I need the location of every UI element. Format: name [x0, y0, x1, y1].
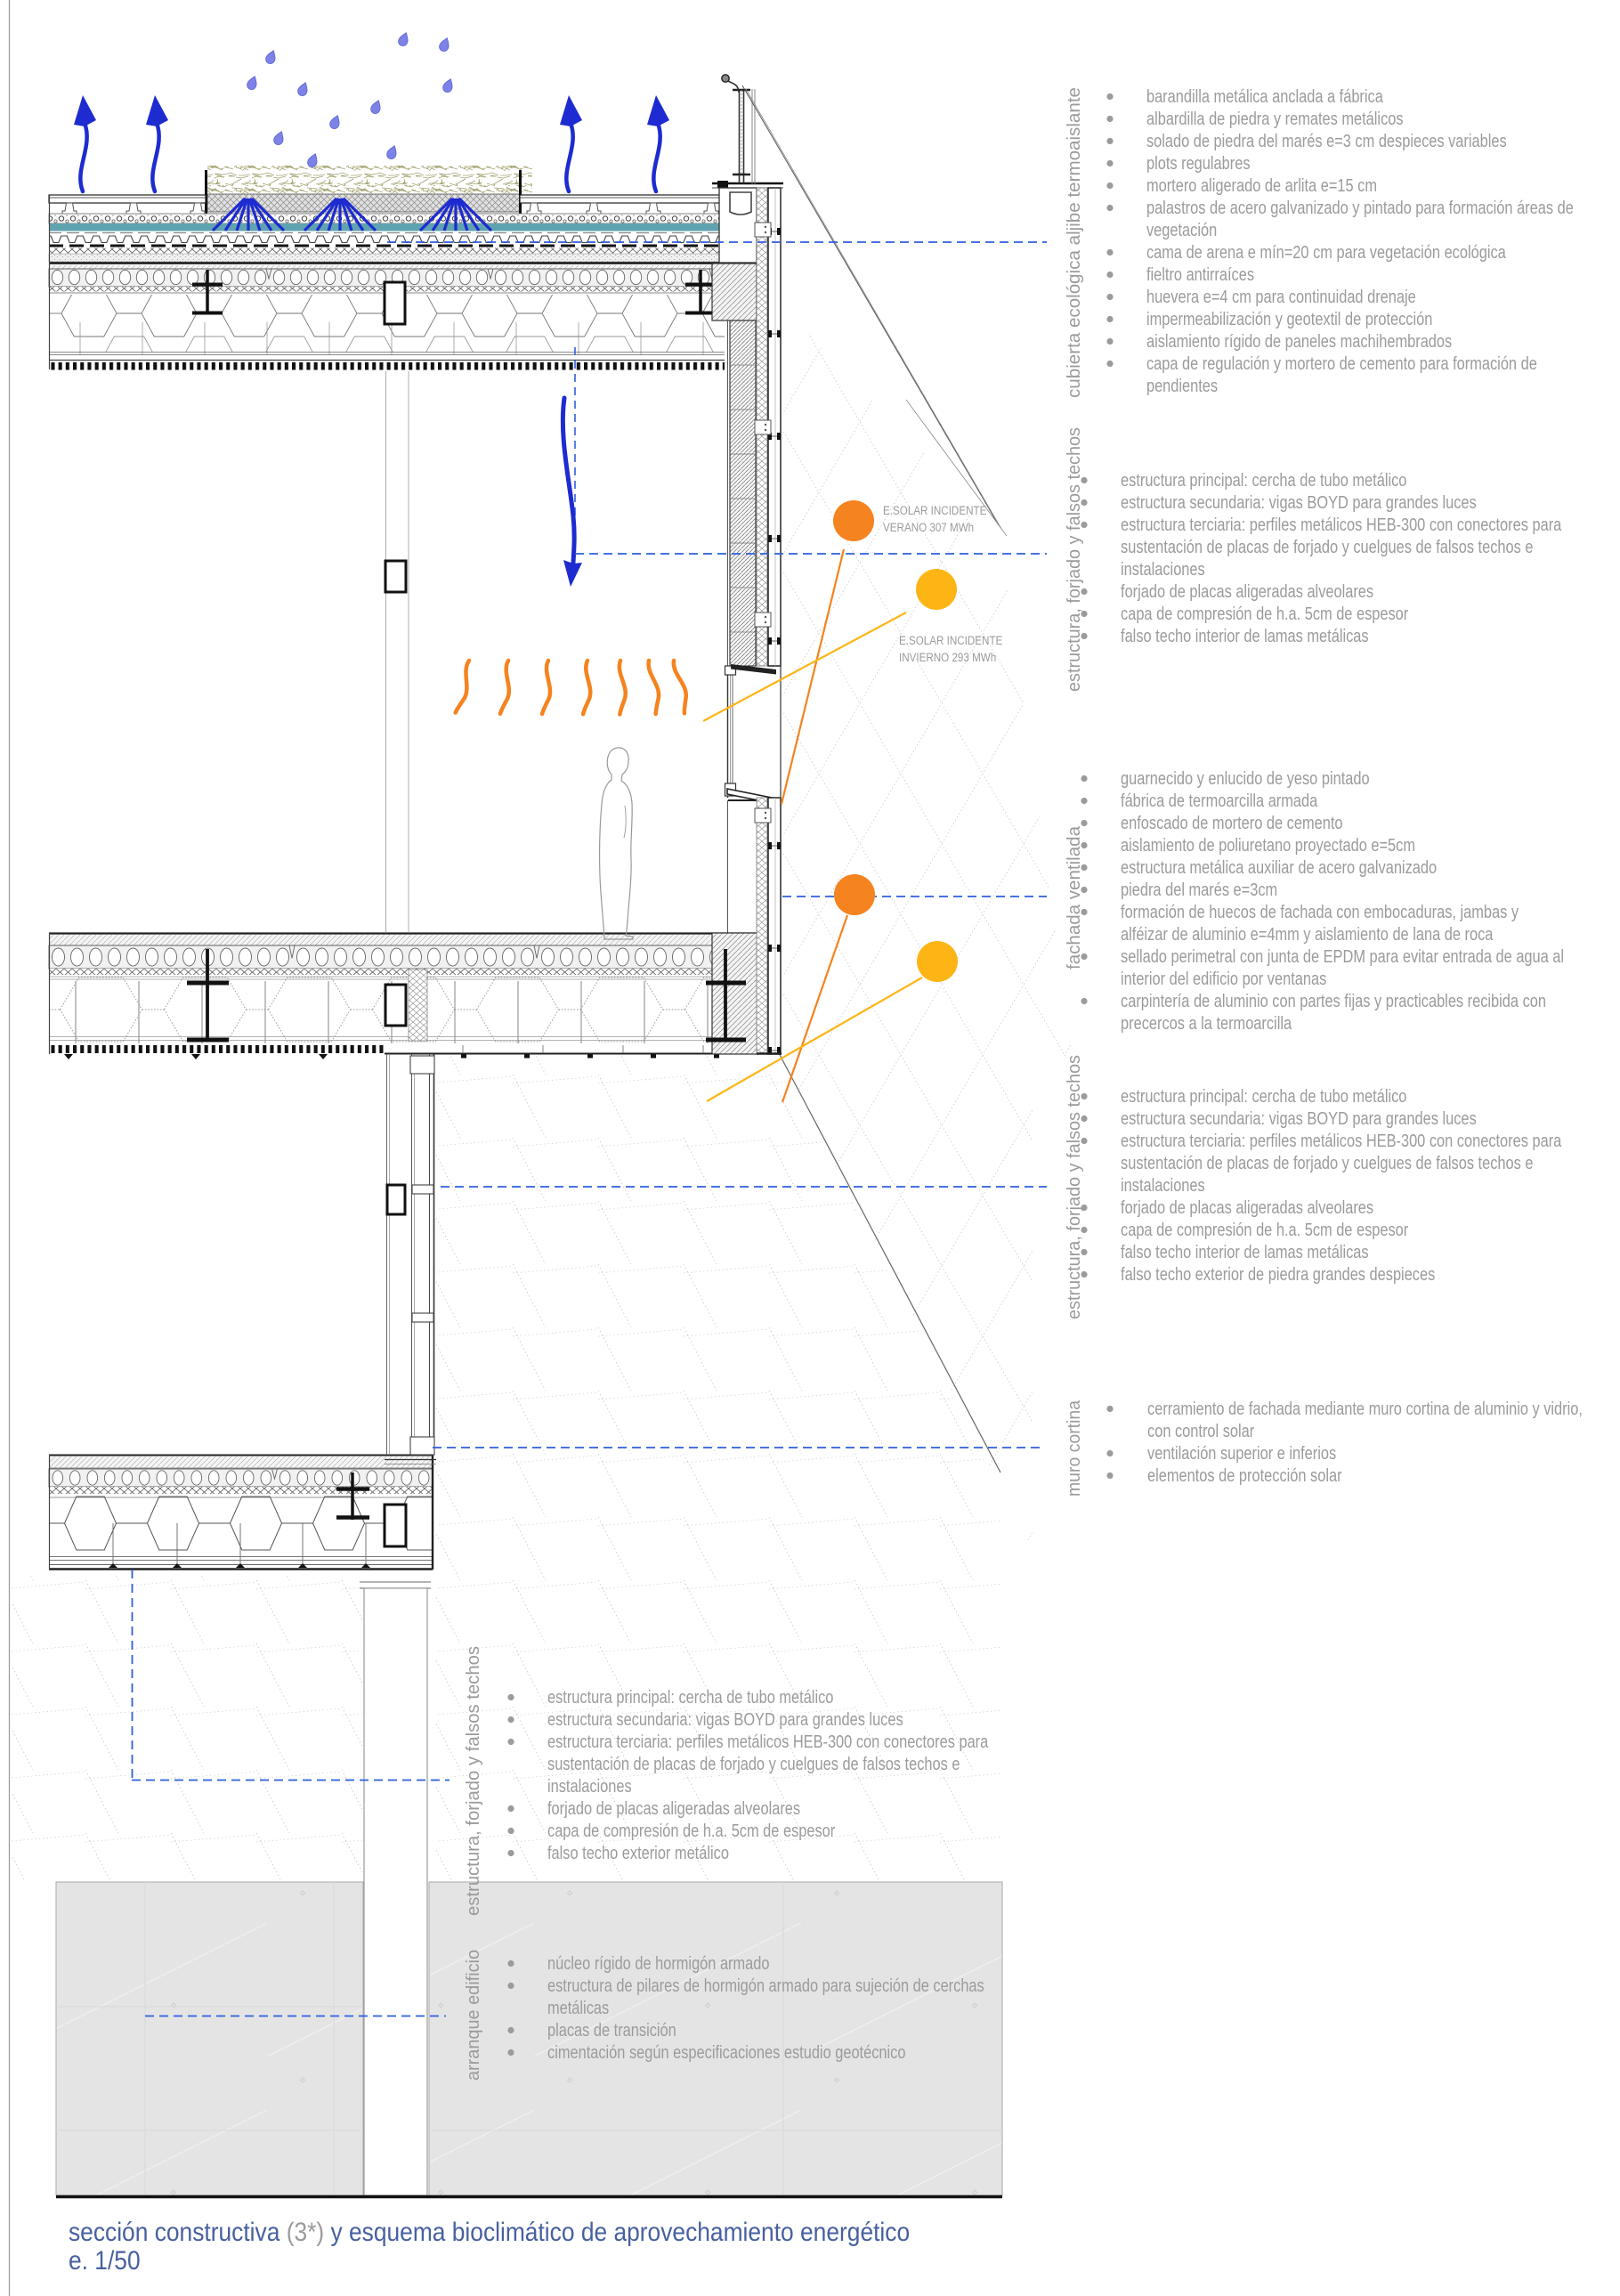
svg-text:enfoscado de mortero de cement: enfoscado de mortero de cemento — [1121, 812, 1342, 832]
svg-text:ventilación superior e inferio: ventilación superior e inferios — [1147, 1442, 1336, 1463]
svg-text:fachada ventilada: fachada ventilada — [1065, 825, 1084, 970]
svg-text:plots regulabres: plots regulabres — [1146, 152, 1251, 173]
svg-text:estructura principal: cercha d: estructura principal: cercha de tubo met… — [547, 1686, 833, 1707]
svg-text:forjado de placas aligeradas a: forjado de placas aligeradas alveolares — [1121, 580, 1373, 601]
svg-text:capa de compresión de h.a. 5cm: capa de compresión de h.a. 5cm de espeso… — [547, 1820, 835, 1840]
svg-text:sellado perimetral con junta d: sellado perimetral con junta de EPDM par… — [1121, 945, 1564, 966]
svg-text:instalaciones: instalaciones — [547, 1775, 632, 1796]
svg-text:falso techo interior de lamas: falso techo interior de lamas metálicas — [1121, 625, 1369, 645]
svg-text:metálicas: metálicas — [547, 1997, 609, 2017]
svg-text:INVIERNO 293 MWh: INVIERNO 293 MWh — [899, 650, 996, 664]
svg-text:fábrica de termoarcilla armada: fábrica de termoarcilla armada — [1121, 790, 1318, 810]
svg-text:estructura terciaria: perfiles: estructura terciaria: perfiles metálicos… — [547, 1731, 989, 1751]
svg-text:vegetación: vegetación — [1146, 219, 1217, 239]
svg-text:estructura terciaria: perfiles: estructura terciaria: perfiles metálicos… — [1121, 1130, 1562, 1150]
svg-text:estructura terciaria: perfiles: estructura terciaria: perfiles metálicos… — [1121, 514, 1562, 534]
svg-text:aislamiento rígido de paneles: aislamiento rígido de paneles machihembr… — [1146, 330, 1452, 351]
svg-text:precercos a la termoarcilla: precercos a la termoarcilla — [1121, 1012, 1292, 1033]
svg-text:cama de arena e mín=20 cm para: cama de arena e mín=20 cm para vegetació… — [1146, 241, 1507, 262]
svg-text:impermeabilización y geotextil: impermeabilización y geotextil de protec… — [1146, 308, 1432, 329]
svg-text:muro cortina: muro cortina — [1065, 1400, 1084, 1497]
svg-text:con control solar: con control solar — [1147, 1420, 1254, 1440]
svg-text:guarnecido y enlucido de yeso: guarnecido y enlucido de yeso pintado — [1121, 767, 1370, 788]
svg-text:mortero aligerado de arlita e=: mortero aligerado de arlita e=15 cm — [1146, 174, 1377, 195]
svg-text:sustentación de placas de forj: sustentación de placas de forjado y cuel… — [547, 1753, 960, 1773]
svg-text:palastros de acero galvanizado: palastros de acero galvanizado y pintado… — [1146, 197, 1574, 217]
svg-text:carpintería de aluminio con pa: carpintería de aluminio con partes fijas… — [1121, 990, 1546, 1010]
svg-text:capa de compresión de h.a. 5cm: capa de compresión de h.a. 5cm de espeso… — [1121, 603, 1408, 623]
svg-text:huevera e=4 cm para continuida: huevera e=4 cm para continuidad drenaje — [1146, 286, 1416, 306]
svg-text:VERANO 307 MWh: VERANO 307 MWh — [883, 520, 974, 534]
svg-text:e. 1/50: e. 1/50 — [69, 2244, 141, 2275]
svg-text:alféizar de aluminio e=4mm y a: alféizar de aluminio e=4mm y aislamiento… — [1121, 923, 1494, 944]
svg-text:fieltro antirraíces: fieltro antirraíces — [1146, 264, 1254, 284]
svg-text:estructura metálica auxiliar d: estructura metálica auxiliar de acero ga… — [1121, 856, 1437, 877]
svg-text:instalaciones: instalaciones — [1121, 558, 1205, 579]
svg-text:forjado de placas aligeradas a: forjado de placas aligeradas alveolares — [1121, 1197, 1373, 1217]
svg-text:falso techo exterior metálico: falso techo exterior metálico — [547, 1842, 729, 1862]
svg-text:capa de compresión de h.a. 5cm: capa de compresión de h.a. 5cm de espeso… — [1121, 1219, 1408, 1239]
svg-text:falso techo exterior de piedra: falso techo exterior de piedra grandes d… — [1121, 1263, 1435, 1284]
svg-text:piedra del marés e=3cm: piedra del marés e=3cm — [1121, 879, 1277, 899]
svg-text:núcleo rígido de hormigón arma: núcleo rígido de hormigón armado — [547, 1952, 769, 1973]
svg-text:estructura secundaria: vigas B: estructura secundaria: vigas BOYD para g… — [1121, 1107, 1477, 1128]
svg-text:estructura, forjado y falsos t: estructura, forjado y falsos techos — [1065, 1055, 1084, 1319]
svg-text:estructura secundaria: vigas B: estructura secundaria: vigas BOYD para g… — [1121, 491, 1477, 512]
svg-text:placas de transición: placas de transición — [547, 2019, 676, 2040]
svg-text:aislamiento de poliuretano pro: aislamiento de poliuretano proyectado e=… — [1121, 834, 1415, 855]
svg-text:estructura principal: cercha d: estructura principal: cercha de tubo met… — [1121, 469, 1406, 490]
svg-text:formación de huecos de fachada: formación de huecos de fachada con emboc… — [1121, 901, 1519, 921]
svg-text:E.SOLAR INCIDENTE: E.SOLAR INCIDENTE — [899, 633, 1003, 647]
svg-text:pendientes: pendientes — [1146, 375, 1218, 395]
svg-text:cerramiento de fachada mediant: cerramiento de fachada mediante muro cor… — [1147, 1398, 1583, 1418]
svg-text:estructura, forjado y falsos t: estructura, forjado y falsos techos — [464, 1646, 483, 1916]
svg-text:sustentación de placas de forj: sustentación de placas de forjado y cuel… — [1121, 1152, 1533, 1172]
svg-text:capa de regulación y mortero d: capa de regulación y mortero de cemento … — [1146, 353, 1537, 373]
svg-text:elementos de protección solar: elementos de protección solar — [1147, 1464, 1342, 1485]
svg-text:arranque edificio: arranque edificio — [464, 1950, 483, 2081]
svg-text:cimentación según especificaci: cimentación según especificaciones estud… — [547, 2041, 905, 2062]
svg-text:instalaciones: instalaciones — [1121, 1174, 1205, 1195]
svg-text:falso techo interior de lamas: falso techo interior de lamas metálicas — [1121, 1241, 1369, 1262]
svg-text:estructura, forjado y falsos t: estructura, forjado y falsos techos — [1065, 427, 1084, 692]
svg-text:E.SOLAR INCIDENTE: E.SOLAR INCIDENTE — [883, 503, 987, 517]
svg-text:solado de piedra del marés e=3: solado de piedra del marés e=3 cm despie… — [1146, 130, 1507, 150]
svg-text:albardilla de piedra y remates: albardilla de piedra y remates metálicos — [1146, 108, 1404, 128]
svg-text:estructura de pilares de hormi: estructura de pilares de hormigón armado… — [547, 1975, 984, 1995]
svg-text:forjado de placas aligeradas a: forjado de placas aligeradas alveolares — [547, 1797, 800, 1818]
svg-text:cubierta ecológica aljibe term: cubierta ecológica aljibe termoaislante — [1065, 87, 1084, 398]
svg-text:estructura secundaria: vigas B: estructura secundaria: vigas BOYD para g… — [547, 1708, 903, 1729]
svg-text:barandilla metálica anclada a: barandilla metálica anclada a fábrica — [1146, 85, 1384, 106]
svg-text:sección constructiva (3*) y e: sección constructiva (3*) y esquema bioc… — [69, 2216, 910, 2246]
svg-text:estructura principal: cercha d: estructura principal: cercha de tubo met… — [1121, 1085, 1406, 1106]
svg-text:sustentación de placas de forj: sustentación de placas de forjado y cuel… — [1121, 536, 1533, 556]
svg-text:interior del edificio por vent: interior del edificio por ventanas — [1121, 968, 1326, 988]
